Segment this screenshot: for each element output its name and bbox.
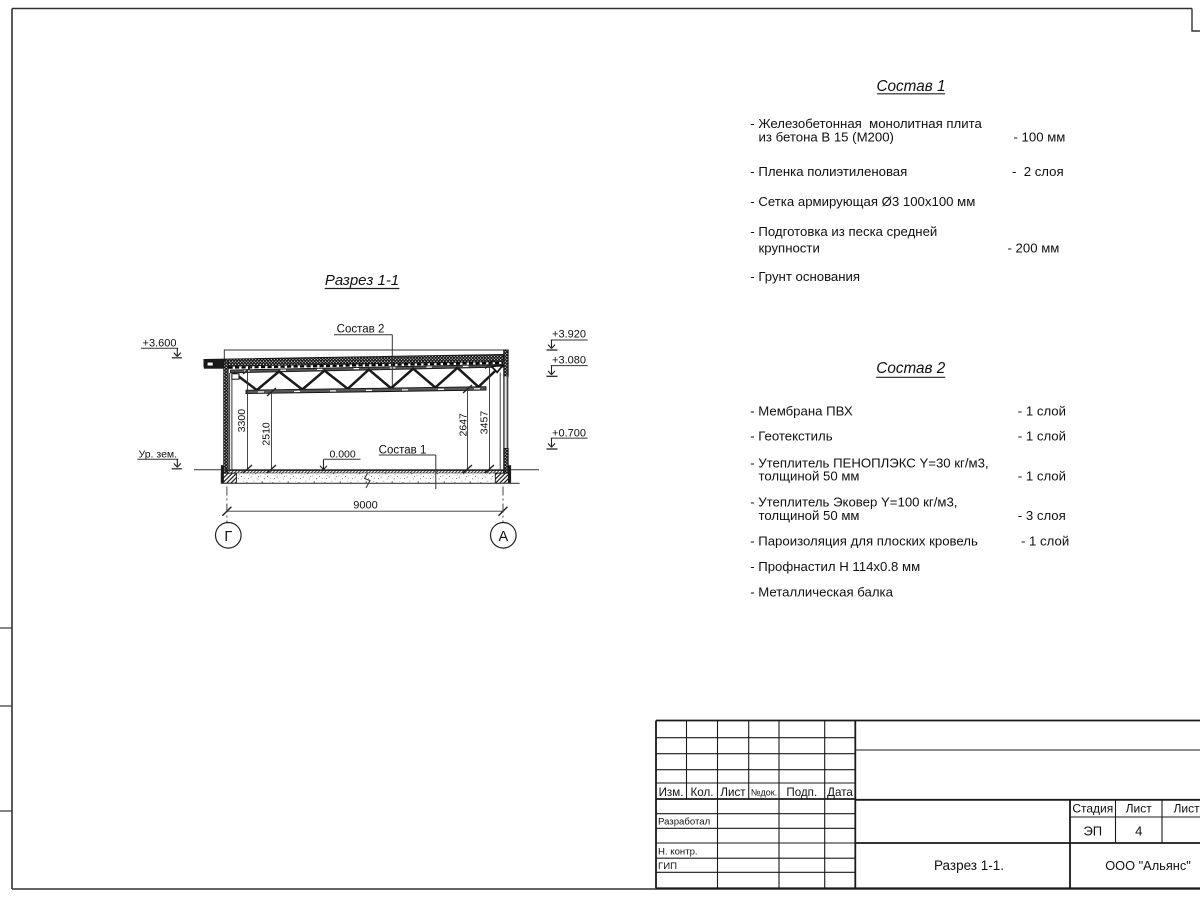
svg-text:3457: 3457 <box>479 411 491 435</box>
svg-text:Ур. зем.: Ур. зем. <box>139 448 178 460</box>
svg-text:крупности: крупности <box>759 241 820 256</box>
svg-text:+3.080: +3.080 <box>552 355 586 367</box>
svg-text:- 1 слой: - 1 слой <box>1018 404 1066 419</box>
svg-text:Стадия: Стадия <box>1072 802 1113 816</box>
svg-text:- Пленка полиэтиленовая: - Пленка полиэтиленовая <box>750 164 907 179</box>
svg-text:толщиной 50 мм: толщиной 50 мм <box>759 508 860 523</box>
svg-text:- Грунт основания: - Грунт основания <box>750 269 860 284</box>
svg-text:Подп.: Подп. <box>786 786 817 799</box>
svg-text:- Мембрана ПВХ: - Мембрана ПВХ <box>750 404 853 419</box>
svg-text:Изм.: Изм. <box>659 786 684 799</box>
svg-text:толщиной 50 мм: толщиной 50 мм <box>759 468 860 483</box>
svg-text:- 1 слой: - 1 слой <box>1018 428 1066 443</box>
svg-text:Н. контр.: Н. контр. <box>658 847 698 858</box>
svg-text:ГИП: ГИП <box>658 861 677 872</box>
svg-text:0.000: 0.000 <box>329 448 355 460</box>
svg-text:- 2 слоя: - 2 слоя <box>1012 164 1064 179</box>
svg-text:3300: 3300 <box>236 409 248 433</box>
svg-text:4: 4 <box>1135 824 1142 839</box>
svg-text:9000: 9000 <box>353 500 377 512</box>
svg-text:Листов: Листов <box>1174 802 1200 816</box>
svg-text:- 1 слой: - 1 слой <box>1018 468 1066 483</box>
svg-text:Состав 2: Состав 2 <box>337 324 385 336</box>
svg-text:2647: 2647 <box>458 413 470 437</box>
svg-text:Разработал: Разработал <box>658 816 710 827</box>
svg-text:Разрез 1-1.: Разрез 1-1. <box>934 858 1004 873</box>
svg-text:Дата: Дата <box>827 786 853 799</box>
svg-text:- 1 слой: - 1 слой <box>1021 534 1069 549</box>
svg-text:Кол.: Кол. <box>691 786 714 799</box>
svg-text:- 100 мм: - 100 мм <box>1014 129 1066 144</box>
svg-text:из бетона В 15 (М200): из бетона В 15 (М200) <box>759 129 894 144</box>
svg-text:- 3 слоя: - 3 слоя <box>1018 508 1066 523</box>
svg-text:2510: 2510 <box>261 422 273 446</box>
svg-text:- Сетка армирующая Ø3 100x100: - Сетка армирующая Ø3 100x100 мм <box>750 194 975 209</box>
svg-text:ООО "Альянс": ООО "Альянс" <box>1105 858 1191 873</box>
svg-text:- Пароизоляция для плоских кро: - Пароизоляция для плоских кровель <box>750 534 978 549</box>
svg-text:Разрез 1-1: Разрез 1-1 <box>325 272 399 289</box>
svg-text:Состав 1: Состав 1 <box>876 78 945 95</box>
svg-text:Лист: Лист <box>720 786 746 799</box>
svg-text:Лист: Лист <box>1126 802 1153 816</box>
svg-text:+3.600: +3.600 <box>143 337 177 349</box>
svg-text:А: А <box>498 529 508 545</box>
svg-text:- Металлическая балка: - Металлическая балка <box>750 585 893 600</box>
svg-text:№док.: №док. <box>751 787 777 797</box>
svg-text:ЭП: ЭП <box>1083 824 1102 839</box>
svg-text:- Профнастил Н 114х0.8 мм: - Профнастил Н 114х0.8 мм <box>750 559 920 574</box>
svg-text:- 200 мм: - 200 мм <box>1008 241 1060 256</box>
svg-text:- Геотекстиль: - Геотекстиль <box>750 428 833 443</box>
svg-text:Г: Г <box>224 529 232 545</box>
svg-text:- Подготовка из песка средней: - Подготовка из песка средней <box>750 224 937 239</box>
svg-text:+0.700: +0.700 <box>552 427 586 439</box>
svg-text:+3.920: +3.920 <box>552 329 586 341</box>
svg-text:Состав 2: Состав 2 <box>876 360 946 377</box>
